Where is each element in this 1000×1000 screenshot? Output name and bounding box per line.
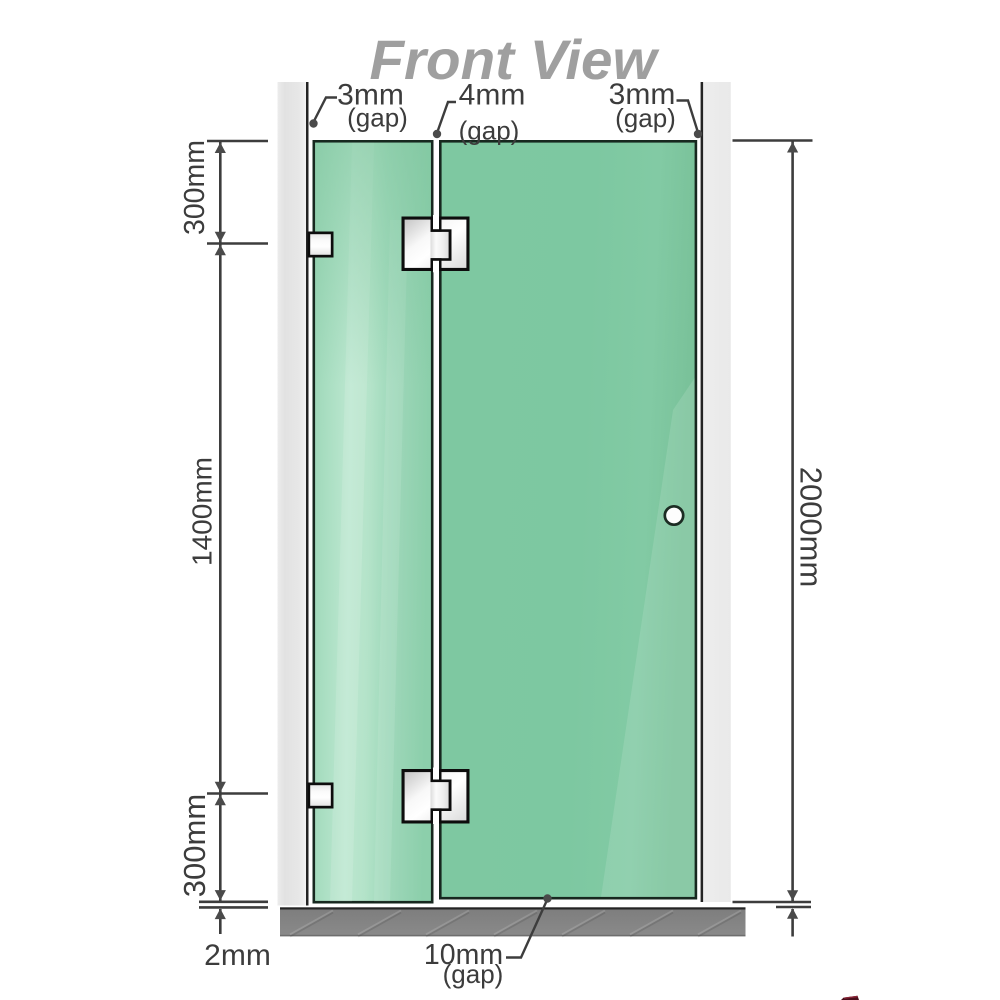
svg-text:4mm: 4mm [459, 79, 526, 112]
svg-text:1400mm: 1400mm [186, 457, 217, 566]
svg-text:(gap): (gap) [615, 103, 676, 133]
svg-text:300mm: 300mm [177, 794, 212, 897]
svg-text:2mm: 2mm [204, 939, 271, 972]
svg-text:(gap): (gap) [459, 116, 520, 146]
svg-text:2000mm: 2000mm [793, 467, 828, 588]
svg-text:(gap): (gap) [443, 959, 504, 989]
svg-text:300mm: 300mm [179, 140, 211, 235]
svg-text:(gap): (gap) [347, 103, 408, 133]
